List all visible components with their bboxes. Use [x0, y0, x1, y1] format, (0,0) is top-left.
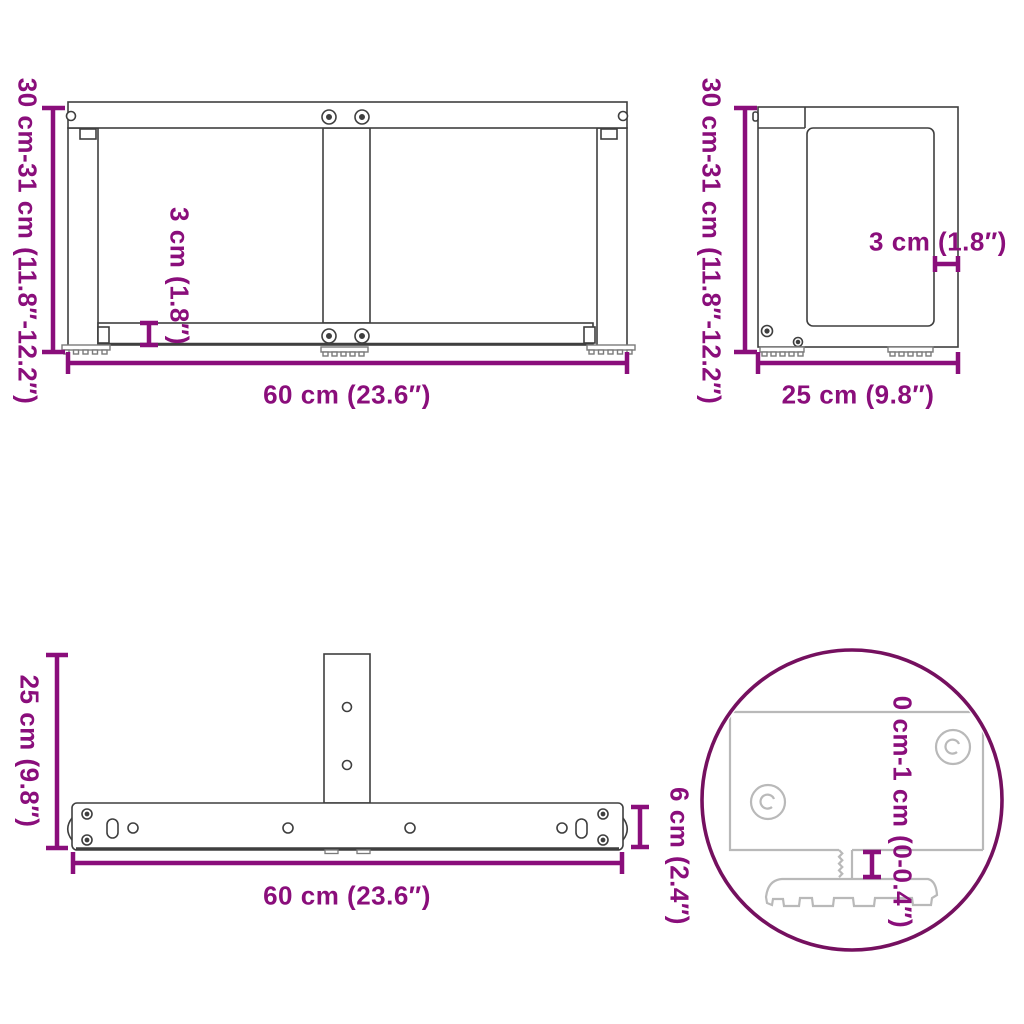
top-depth-label: 25 cm (9.8″): [14, 675, 45, 828]
front-top-bar-notch-right: [619, 112, 628, 121]
top-bar-depth-marker: [631, 807, 649, 847]
front-height-dimension: [42, 108, 65, 352]
detail-adjust-marker: [863, 852, 881, 877]
front-top-bar: [68, 102, 627, 128]
side-height-dimension: [734, 108, 757, 352]
top-width-label: 60 cm (23.6″): [263, 881, 431, 912]
detail-pin-hole-2: [936, 730, 970, 764]
top-depth-dimension: [46, 655, 68, 848]
front-width-label: 60 cm (23.6″): [263, 380, 431, 411]
top-view-drawing: [46, 654, 649, 874]
detail-pin-hole-1: [751, 785, 785, 819]
top-width-dimension: [73, 852, 622, 874]
side-depth-label: 25 cm (9.8″): [782, 380, 935, 411]
detail-foot-adjustment-label: 0 cm-1 cm (0-0.4″): [887, 696, 918, 928]
top-stem-hole-2: [343, 761, 352, 770]
side-stem-notch: [753, 112, 758, 121]
detail-view-drawing: [702, 650, 1002, 950]
side-foot-left: [760, 347, 804, 356]
front-top-bar-notch-left: [67, 112, 76, 121]
front-right-leg: [597, 128, 627, 347]
front-right-leg-tab: [601, 129, 617, 139]
top-stem: [324, 654, 370, 803]
front-width-dimension: [68, 352, 627, 374]
front-foot-center: [321, 347, 368, 356]
detail-threaded-stem: [839, 850, 852, 878]
front-bottom-bracket-left: [98, 327, 109, 343]
top-stem-hole-1: [343, 703, 352, 712]
side-height-label: 30 cm-31 cm (11.8″-12.2″): [696, 78, 727, 404]
front-left-leg-tab: [80, 129, 96, 139]
front-bar-thickness-label: 3 cm (1.8″): [164, 207, 195, 345]
front-left-leg: [68, 128, 98, 347]
detail-magnifier-circle: [702, 650, 1002, 950]
top-bar: [72, 803, 623, 850]
top-bar-depth-label: 6 cm (2.4″): [664, 787, 695, 925]
front-height-label: 30 cm-31 cm (11.8″-12.2″): [12, 78, 43, 404]
side-foot-right: [888, 347, 933, 356]
diagram-canvas: 30 cm-31 cm (11.8″-12.2″) 3 cm (1.8″) 60…: [0, 0, 1024, 1024]
front-view-drawing: [42, 102, 635, 374]
front-center-column: [323, 128, 370, 323]
front-bottom-bracket-right: [584, 327, 595, 343]
diagram-artwork: [0, 0, 1024, 1024]
side-wall-thickness-label: 3 cm (1.8″): [869, 227, 1007, 258]
